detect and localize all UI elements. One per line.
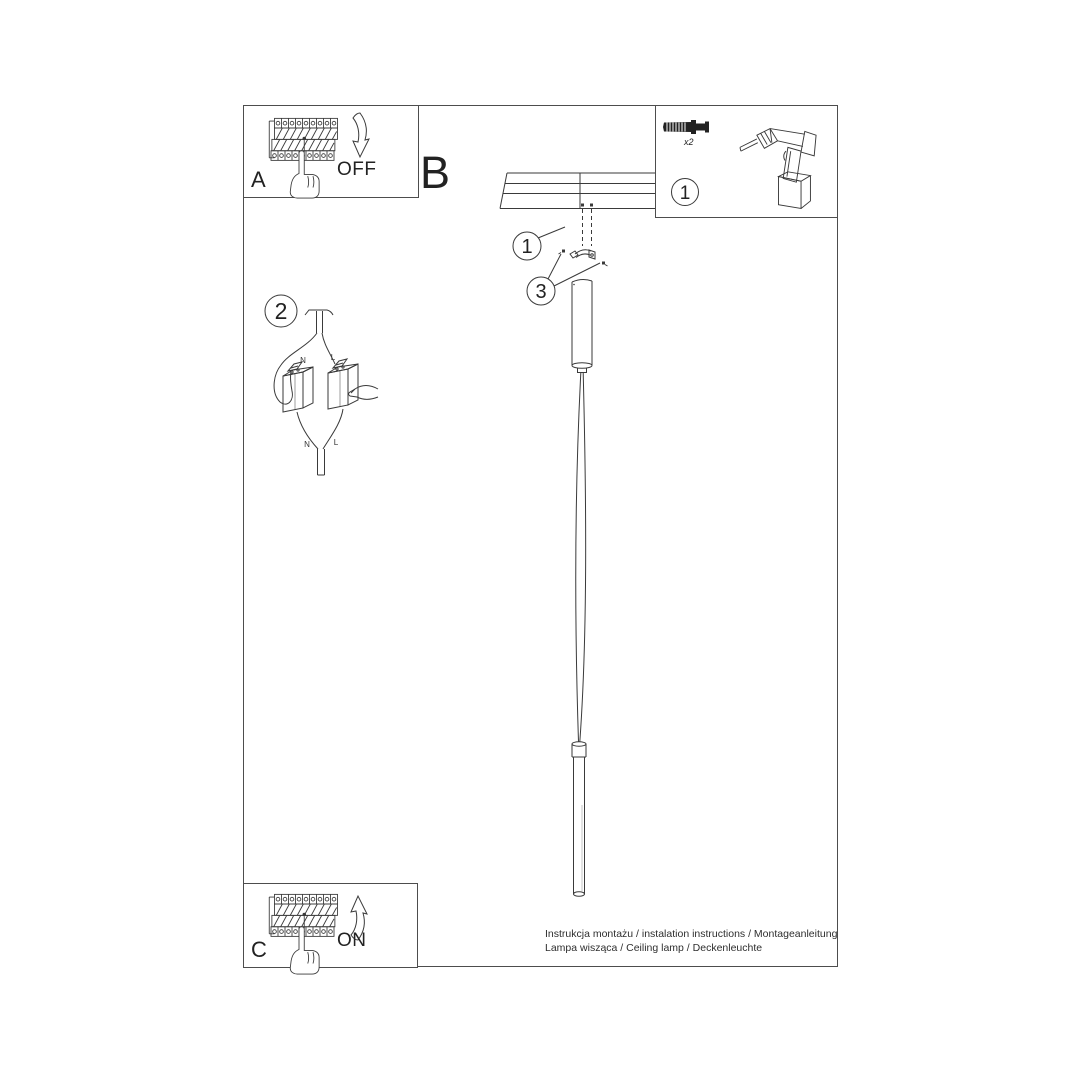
breaker-panel-icon	[262, 114, 350, 198]
caption-line-1: Instrukcja montażu / instalation instruc…	[545, 927, 837, 941]
callout-1-number: 1	[521, 236, 532, 258]
tools-callout-badge: 1	[670, 177, 700, 207]
wiring-diagram: 2	[265, 295, 378, 475]
caption: Instrukcja montażu / instalation instruc…	[545, 927, 837, 955]
canopy-drawing	[572, 279, 592, 372]
tools-panel: x2 1	[655, 105, 838, 218]
callout-1-badge: 1	[513, 227, 565, 260]
neutral-label-top: N	[300, 356, 306, 365]
callout-2-badge: 2	[265, 295, 297, 327]
callout-2-number: 2	[275, 298, 288, 324]
caption-line-2: Lampa wisząca / Ceiling lamp / Deckenleu…	[545, 941, 837, 955]
step-b-letter: B	[420, 150, 450, 195]
step-a-panel: OFF A	[243, 105, 419, 198]
ceiling-hook-icon	[305, 310, 333, 333]
ceiling-screws-icon	[581, 204, 593, 247]
step-c-panel: ON C	[243, 883, 418, 968]
arrow-down-icon	[344, 112, 370, 164]
assembly-diagram: 1 3	[243, 105, 838, 967]
hand-icon	[290, 151, 319, 198]
callout-3-number: 3	[535, 281, 546, 303]
off-label: OFF	[337, 159, 377, 181]
step-a-letter: A	[251, 167, 266, 193]
on-label: ON	[337, 930, 367, 952]
lamp-tube-drawing	[572, 742, 586, 897]
anchor-quantity-label: x2	[684, 137, 694, 147]
hand-icon	[290, 927, 319, 974]
terminal-connector-right	[328, 359, 358, 409]
tools-callout-number: 1	[680, 183, 691, 204]
step-c-letter: C	[251, 937, 267, 963]
live-label-top: L	[331, 353, 336, 362]
live-label-bottom: L	[334, 438, 339, 447]
toggle-dot	[303, 913, 307, 917]
ceiling-drawing	[500, 173, 655, 209]
suspension-cable	[576, 373, 586, 742]
callout-3-badge: 3	[527, 254, 600, 305]
toggle-dot	[303, 137, 307, 141]
pressing-finger-icon	[349, 386, 379, 400]
neutral-label-bottom: N	[304, 440, 310, 449]
terminal-connector-left	[283, 362, 313, 412]
mounting-bracket-icon	[559, 250, 608, 267]
drill-icon	[738, 122, 834, 216]
instruction-sheet: 1 3	[0, 0, 1080, 1080]
wall-anchor-icon	[663, 118, 713, 136]
